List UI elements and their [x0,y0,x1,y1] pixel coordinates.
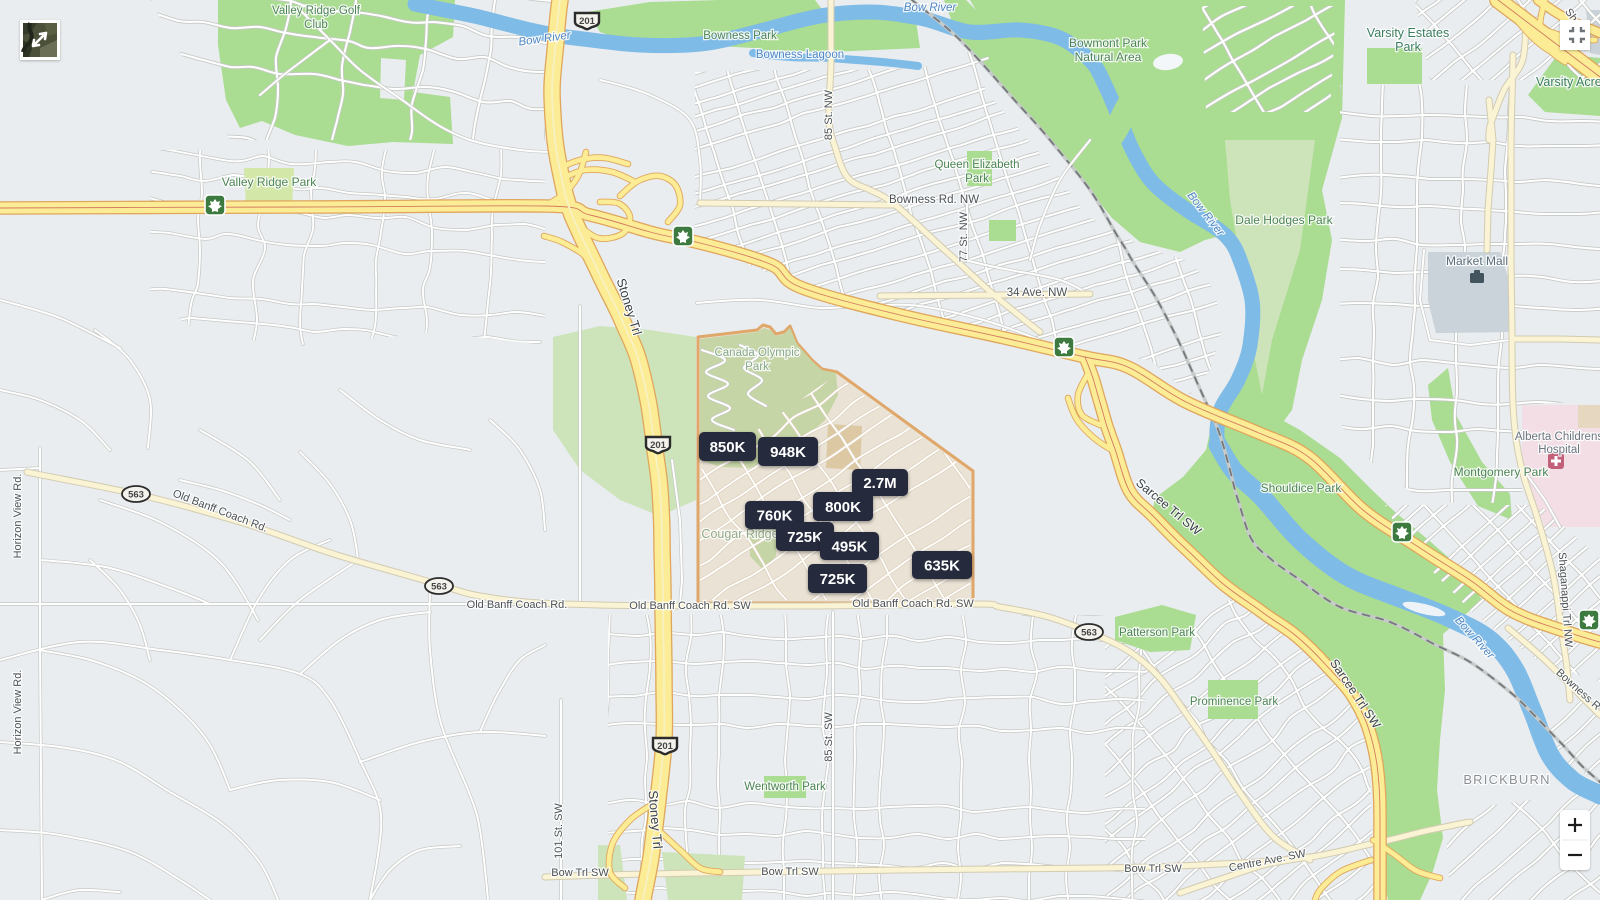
svg-text:Old Banff Coach Rd. SW: Old Banff Coach Rd. SW [852,598,974,610]
svg-text:850K: 850K [710,439,746,456]
svg-text:Bow River: Bow River [904,2,958,14]
svg-text:Bowness Rd. NW: Bowness Rd. NW [889,194,979,206]
svg-text:Park: Park [745,361,769,373]
svg-text:Horizon View Rd.: Horizon View Rd. [12,670,24,755]
svg-text:Hospital: Hospital [1538,444,1580,456]
svg-text:563: 563 [128,490,144,501]
svg-text:Valley Ridge Park: Valley Ridge Park [222,175,317,189]
svg-text:77 St. NW: 77 St. NW [958,211,970,262]
svg-text:Bowness Park: Bowness Park [703,30,777,42]
svg-text:Bow Trl SW: Bow Trl SW [761,866,819,878]
svg-text:Patterson Park: Patterson Park [1119,627,1195,639]
svg-text:Old Banff Coach Rd.: Old Banff Coach Rd. [467,599,568,611]
svg-text:563: 563 [431,582,447,593]
svg-text:Cougar Ridge: Cougar Ridge [701,527,778,541]
svg-text:101 St. SW: 101 St. SW [553,803,565,859]
svg-text:Bowmont Park: Bowmont Park [1069,36,1148,50]
svg-text:2.7M: 2.7M [863,475,896,492]
svg-text:948K: 948K [770,444,806,461]
svg-text:760K: 760K [757,508,793,525]
svg-text:Dale Hodges Park: Dale Hodges Park [1235,213,1333,227]
svg-text:Club: Club [304,19,328,31]
svg-text:725K: 725K [787,529,823,546]
svg-text:201: 201 [579,16,596,27]
svg-text:Varsity Acres: Varsity Acres [1536,75,1600,89]
svg-text:563: 563 [1081,628,1097,639]
svg-text:34 Ave. NW: 34 Ave. NW [1007,287,1068,299]
svg-text:Park: Park [965,173,989,185]
svg-text:Bow Trl SW: Bow Trl SW [1124,863,1182,875]
svg-text:BRICKBURN: BRICKBURN [1463,772,1550,787]
svg-text:Valley Ridge Golf: Valley Ridge Golf [272,5,361,17]
svg-text:Shouldice Park: Shouldice Park [1261,481,1343,495]
svg-text:Park: Park [1395,40,1421,54]
svg-text:725K: 725K [820,571,856,588]
svg-text:Bowness Lagoon: Bowness Lagoon [756,49,844,61]
svg-text:201: 201 [657,741,674,752]
svg-text:495K: 495K [832,539,868,556]
svg-text:Varsity Estates: Varsity Estates [1367,26,1449,40]
svg-text:Natural Area: Natural Area [1075,50,1142,64]
svg-text:Old Banff Coach Rd. SW: Old Banff Coach Rd. SW [629,600,751,612]
svg-text:800K: 800K [825,499,861,516]
svg-text:201: 201 [650,440,667,451]
svg-text:85 St. SW: 85 St. SW [823,712,835,762]
svg-text:Market Mall: Market Mall [1446,254,1508,268]
svg-text:Horizon View Rd.: Horizon View Rd. [12,474,24,559]
svg-text:Bow Trl SW: Bow Trl SW [551,867,609,879]
svg-text:635K: 635K [924,558,960,575]
svg-text:Alberta Childrens: Alberta Childrens [1515,431,1600,443]
svg-text:Prominence Park: Prominence Park [1190,696,1278,708]
svg-text:Queen Elizabeth: Queen Elizabeth [934,159,1019,171]
svg-text:Canada Olympic: Canada Olympic [714,347,799,359]
svg-text:Wentworth Park: Wentworth Park [744,781,826,793]
svg-text:85 St. NW: 85 St. NW [823,89,835,140]
svg-text:Montgomery Park: Montgomery Park [1454,465,1550,479]
